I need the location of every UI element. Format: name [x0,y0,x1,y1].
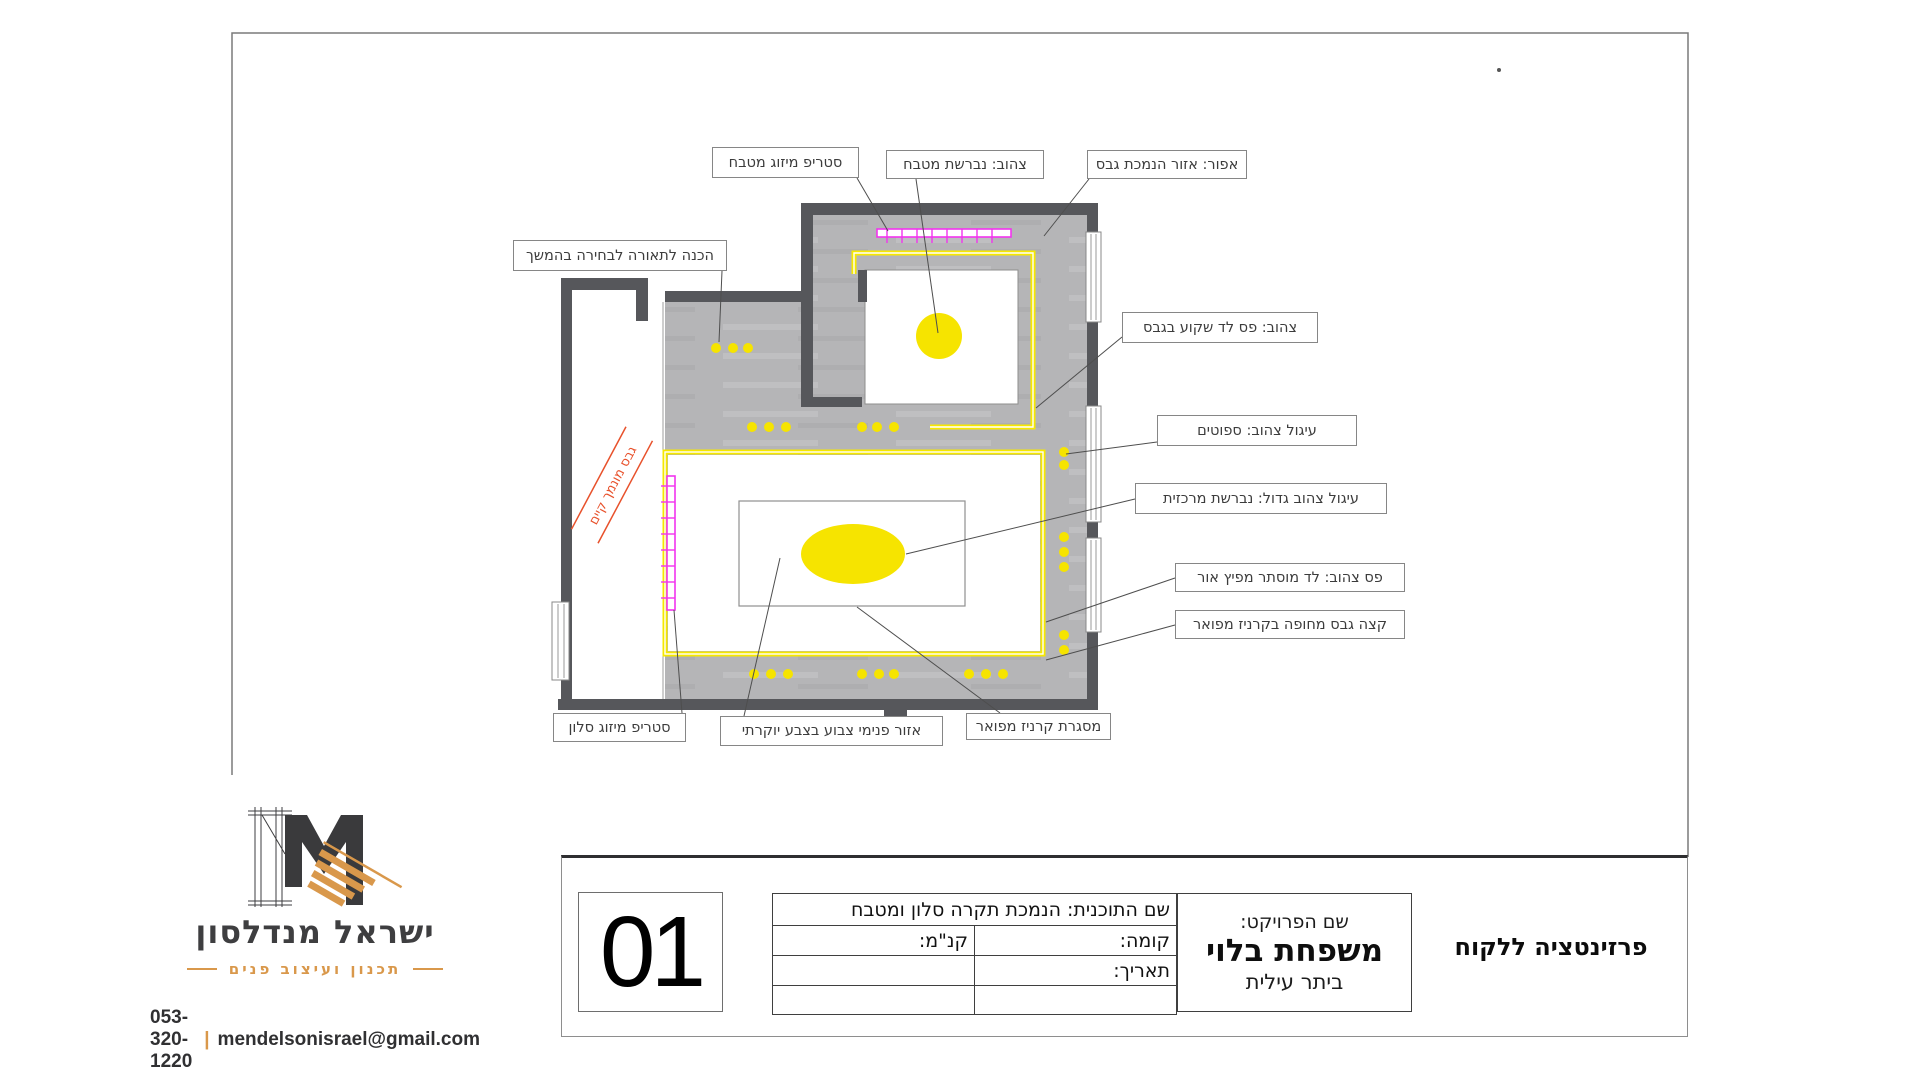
label-yellow-circle-spots: עיגול צהוב: ספוטים [1157,415,1357,446]
project-location: ביתר עילית [1246,970,1343,994]
label-strip-ac-living: סטריפ מיזוג סלון [553,713,686,742]
designer-name: ישראל מנדלסון [150,913,480,951]
label-inner-painted-area: אזור פנימי צבוע בצבע יוקרתי [720,716,943,746]
leader-lines [674,178,1175,716]
label-strip-ac-kitchen: סטריפ מיזוג מטבח [712,147,859,178]
project-name: משפחת בלוי [1206,934,1383,970]
label-cornice-frame: מסגרת קרניז מפואר [966,713,1111,740]
plan-name-cell: שם התוכנית: הנמכת תקרה סלון ומטבח [773,894,1177,926]
designer-logo-block: ישראל מנדלסון תכנון ועיצוב פנים 053-320-… [150,795,480,1045]
designer-contact: 053-320-1220 | mendelsonisrael@gmail.com [150,1007,480,1073]
scale-cell: קנ"מ: [773,926,975,956]
empty-cell-1 [773,956,975,986]
label-big-yellow-circle: עיגול צהוב גדול: נברשת מרכזית [1135,483,1387,514]
project-box: שם הפרויקט: משפחת בלוי ביתר עילית [1177,893,1412,1012]
designer-tagline: תכנון ועיצוב פנים [150,960,480,978]
presentation-title: פרזינטציה ללקוח [1413,858,1689,1036]
empty-cell-3 [773,986,975,1015]
logo-monogram-icon [245,805,405,913]
floor-cell: קומה: [975,926,1177,956]
phone-number: 053-320-1220 [150,1007,196,1073]
title-table: שם התוכנית: הנמכת תקרה סלון ומטבח קומה: … [772,893,1177,1015]
label-yellow-led-strip: צהוב: פס לד שקוע בגבס [1122,312,1318,343]
label-yellow-strip-hidden-led: פס צהוב: לד מוסתר מפיץ אור [1175,563,1405,592]
project-label: שם הפרויקט: [1240,911,1349,933]
tagline-text: תכנון ועיצוב פנים [229,960,401,978]
tagline-dash-left [187,968,217,970]
label-yellow-kitchen-chandelier: צהוב: נברשת מטבח [886,150,1044,179]
tagline-dash-right [413,968,443,970]
label-gray-gypsum-area: אפור: אזור הנמכת גבס [1087,150,1247,179]
date-cell: תאריך: [975,956,1177,986]
label-gypsum-edge-cornice: קצה גבס מחופה בקרניז מפואר [1175,610,1405,639]
empty-cell-2 [975,986,1177,1015]
contact-separator: | [204,1029,209,1051]
stray-dot [1497,68,1501,72]
email-address: mendelsonisrael@gmail.com [218,1029,480,1051]
title-block: 01 שם התוכנית: הנמכת תקרה סלון ומטבח קומ… [561,855,1688,1037]
presentation-sheet: גבס מונמך קיים סטריפ מיזוג מטבח צהוב: נב… [0,0,1920,1080]
label-lighting-prep: הכנה לתאורה לבחירה בהמשך [513,240,727,271]
sheet-number: 01 [578,892,723,1012]
